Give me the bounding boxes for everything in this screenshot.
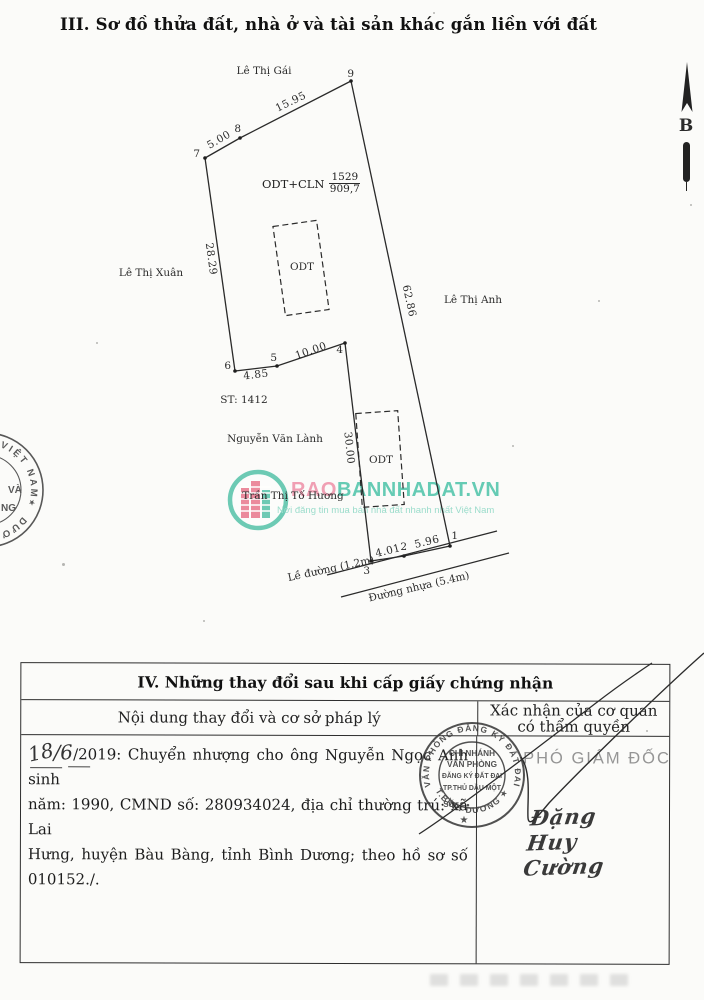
pen-flourish — [0, 630, 704, 880]
flourish-stroke-main — [521, 653, 704, 822]
lot-area: 909,7 — [330, 184, 360, 195]
building-upper-label: ODT — [290, 261, 314, 273]
north-label: B — [679, 116, 693, 136]
vertex-label-8: 8 — [234, 123, 241, 135]
svg-text:DƯƠNG: DƯƠNG — [0, 420, 29, 543]
scan-speck — [433, 12, 435, 14]
vertex-label-4: 4 — [336, 344, 343, 356]
scan-speck — [96, 342, 98, 344]
vertex-label-3: 3 — [363, 565, 370, 577]
scan-speck — [203, 620, 205, 622]
lot-area-fraction: 1529 909,7 — [329, 172, 360, 195]
parcel-boundary — [205, 81, 450, 561]
parcel-use-group: ODT+CLN 1529 909,7 — [262, 172, 360, 195]
left-stamp-frag1: VÀ — [8, 483, 22, 496]
street-label-right: Lê Thị Anh — [444, 294, 502, 306]
left-stamp-arc-bottom: DƯƠNG — [0, 420, 29, 543]
vertex-label-9: 9 — [347, 68, 354, 80]
parcel-use-label: ODT+CLN — [262, 177, 324, 191]
vertex-label-7: 7 — [193, 148, 200, 160]
vertex-label-2: 2 — [400, 541, 407, 553]
scan-speck — [62, 563, 65, 566]
vertex-label-1: 1 — [451, 530, 458, 542]
scan-speck — [512, 445, 514, 447]
left-official-stamp: VIỆT NAM ★ DƯƠNG VÀ NG — [0, 420, 70, 580]
vertex-label-5: 5 — [270, 352, 277, 364]
building-lower-label: ODT — [369, 454, 393, 466]
street-label-top: Lê Thị Gái — [237, 65, 292, 77]
street-label-left: Lê Thị Xuân — [119, 267, 183, 279]
adjacent-parcel-ref: ST: 1412 — [220, 394, 267, 406]
scanned-certificate-page: III. Sơ đồ thửa đất, nhà ở và tài sản kh… — [0, 0, 704, 1000]
scan-speck — [646, 730, 648, 732]
vertex-label-6: 6 — [224, 360, 231, 372]
scan-speck — [690, 204, 692, 206]
left-stamp-frag2: NG — [1, 503, 16, 514]
neighbor-name-1: Nguyễn Văn Lành — [227, 433, 323, 445]
scan-smudge — [430, 974, 640, 986]
flourish-stroke-cross — [419, 663, 652, 834]
neighbor-name-2: Trần Thị Tố Hương — [242, 490, 344, 502]
scan-speck — [598, 300, 600, 302]
